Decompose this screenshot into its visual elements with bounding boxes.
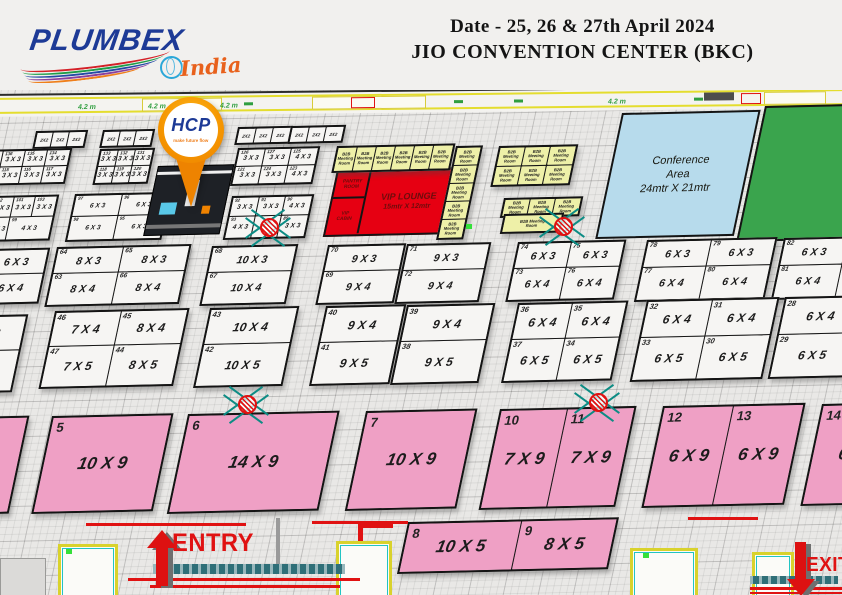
booth-cell: 2X2 xyxy=(134,131,153,145)
conference-size: 24mtr X 21mtr xyxy=(638,181,711,197)
booth-row: 376 X 5346 X 5 xyxy=(503,338,618,381)
wall-segment xyxy=(86,523,246,526)
pin-tagline: make future flow xyxy=(174,138,209,143)
conference-label-2: Area xyxy=(665,167,691,182)
booth-size: 2X2 xyxy=(276,132,285,137)
booth-size: B2B Meeting Room xyxy=(447,204,465,218)
booth-block: 510 X 9 xyxy=(31,413,173,514)
booth-block: B2B Meeting RoomB2B Meeting RoomB2B Meet… xyxy=(490,144,578,187)
booth-size: B2B Meeting Room xyxy=(375,151,393,165)
booth-number: 125 xyxy=(293,149,301,154)
aisle-width-label: 4.2 m xyxy=(608,98,626,105)
booth-number: 63 xyxy=(54,274,63,281)
marker-circle xyxy=(238,395,257,414)
booth-number: 92 xyxy=(235,198,241,203)
door-inner xyxy=(62,548,114,595)
booth-size: 2X2 xyxy=(40,137,49,142)
hcp-location-pin[interactable]: HCP make future flow xyxy=(155,97,227,217)
booth-number: 82 xyxy=(786,240,795,247)
booth-72: 729 X 4 xyxy=(397,269,484,302)
booth-block: 810 X 598 X 5 xyxy=(397,517,619,574)
booth-size: 3 X 3 xyxy=(100,155,117,162)
booth-number: 46 xyxy=(57,313,67,322)
booth-number: 123 xyxy=(289,166,297,171)
booth-row: 336 X 5306 X 5 xyxy=(632,335,770,380)
booth-number: 40 xyxy=(328,308,338,317)
vip-cabin-label: VIP CABIN xyxy=(334,210,355,221)
booth-40: 409 X 4 xyxy=(320,306,404,343)
booth-size: 6 X 5 xyxy=(717,349,748,364)
booth-number: 38 xyxy=(401,342,411,351)
booth-number: 99 xyxy=(11,217,17,222)
booth-size: 6 X 9 xyxy=(836,443,842,464)
booth-124: 1243 X 3 xyxy=(258,166,288,184)
plumbex-logo: PLUMBEX India xyxy=(18,18,268,84)
corridor-red-mark xyxy=(741,93,761,104)
booth-block: 1373 X 31363 X 31353 X 31343 X 31143 X 3… xyxy=(0,148,72,186)
booth-size: 14 X 9 xyxy=(226,452,280,473)
door-frame xyxy=(630,548,698,595)
booth-number: 96 xyxy=(124,195,130,200)
booth-number: 42 xyxy=(204,345,214,354)
booth-cell: B2B Meeting Room xyxy=(442,201,469,220)
booth-size: B2B Meeting Room xyxy=(458,150,476,164)
booth-row: 709 X 3 xyxy=(324,245,404,272)
booth-number: 67 xyxy=(209,273,218,280)
booth-size: 2X2 xyxy=(139,135,148,140)
booth-size: 9 X 3 xyxy=(351,252,378,265)
booth-number: 90 xyxy=(287,197,293,202)
booth-38: 389 X 5 xyxy=(392,340,485,383)
pin-badge: HCP make future flow xyxy=(164,103,218,157)
marker-circle xyxy=(589,393,608,412)
booth-34: 346 X 5 xyxy=(557,338,619,380)
booth-block: 1023 X 31013 X 31033 X 31043 X 3994 X 3 xyxy=(0,194,59,242)
booth-block: B2B Meeting RoomB2B Meeting RoomB2B Meet… xyxy=(331,143,455,173)
booth-66: 668 X 4 xyxy=(112,271,184,303)
booth-size: 6 X 9 xyxy=(736,444,780,465)
booth-62: 626 X 4 xyxy=(0,274,43,303)
booth-45: 458 X 4 xyxy=(115,310,188,345)
door-inner xyxy=(340,545,388,595)
booth-number: 98 xyxy=(73,217,79,222)
booth-block: 126 X 9136 X 9 xyxy=(641,403,805,508)
booth-number: 69 xyxy=(325,272,334,279)
booth-size: 10 X 3 xyxy=(236,253,269,266)
booth-size: 3 X 3 xyxy=(242,154,259,161)
booth-number: 68 xyxy=(214,248,223,255)
booth-size: 4 X 3 xyxy=(289,202,306,209)
booth-number: 76 xyxy=(567,268,576,275)
booth-block: 719 X 3729 X 4 xyxy=(394,242,491,304)
booth-row: 1043 X 3994 X 3 xyxy=(0,217,53,240)
booth-126: 1263 X 3 xyxy=(236,149,266,167)
booth-row: 810 X 598 X 5 xyxy=(399,519,616,572)
booth-29: 296 X 5 xyxy=(770,333,842,377)
booth-number: 65 xyxy=(124,247,133,254)
booth-number: 74 xyxy=(520,244,529,251)
booth-row: 4310 X 4 xyxy=(204,308,297,345)
floor-marker-dot xyxy=(466,224,472,229)
booth-row: 719 X 3 xyxy=(403,244,489,271)
booth-size: 2X2 xyxy=(107,136,116,141)
booth-number: 124 xyxy=(263,166,271,171)
booth-row: 729 X 4 xyxy=(397,269,484,302)
booth-size: 6 X 4 xyxy=(805,309,836,324)
booth-37: 376 X 5 xyxy=(503,339,565,381)
booth-number: 6 xyxy=(191,418,201,433)
booth-row: 126 X 9136 X 9 xyxy=(644,405,803,506)
booth-block: 4310 X 44210 X 5 xyxy=(193,306,299,388)
booth-99: 994 X 3 xyxy=(6,217,53,240)
booth-size: 3 X 3 xyxy=(265,171,282,178)
booth-size: 6 X 5 xyxy=(572,351,603,366)
marker-circle xyxy=(554,217,573,236)
booth-size: 3 X 3 xyxy=(131,170,148,177)
vip-lounge-label: VIP LOUNGE xyxy=(378,191,440,202)
booth-121: 1213 X 3 xyxy=(232,166,262,184)
booth-row: 2X22X22X2 xyxy=(290,127,344,142)
booth-78: 786 X 3 xyxy=(643,241,712,268)
booth-size: 3 X 3 xyxy=(23,171,40,178)
booth-size: 6 X 4 xyxy=(0,282,24,295)
booth-size: 3 X 3 xyxy=(1,172,18,179)
booth-size: B2B Meeting Room xyxy=(502,150,520,164)
booth-block: 2X22X22X2 xyxy=(32,130,88,149)
booth-block: 710 X 9 xyxy=(345,408,478,511)
booth-44: 448 X 5 xyxy=(106,344,180,385)
booth-123: 1234 X 3 xyxy=(285,165,315,183)
booth-size: B2B Meeting Room xyxy=(527,150,545,164)
booth-number: 93 xyxy=(231,217,237,222)
booth-row: B2B Meeting Room xyxy=(446,183,473,202)
booth-7: 710 X 9 xyxy=(347,411,475,509)
booth-number: 80 xyxy=(707,266,716,273)
booth-block: 2X22X22X2 xyxy=(234,126,293,145)
booth-number: 28 xyxy=(787,299,797,308)
pantry-label: PANTRY ROOM xyxy=(341,178,363,189)
booth-block: 1333 X 31323 X 31313 X 31183 X 31193 X 3… xyxy=(92,148,155,185)
exit-sign: EXIT xyxy=(806,554,842,577)
cross-marker xyxy=(246,205,290,249)
booth-number: 135 xyxy=(27,151,35,156)
booth-size: 3 X 3 xyxy=(5,156,22,163)
booth-row: 699 X 4 xyxy=(318,270,399,303)
booth-131: 1313 X 3 xyxy=(132,150,152,166)
conference-label-1: Conference xyxy=(651,152,711,168)
booth-77: 776 X 4 xyxy=(636,267,706,300)
booth-42: 4210 X 5 xyxy=(195,343,289,386)
booth-row: 816 X 4846 X 4 xyxy=(773,263,842,298)
booth-76: 766 X 4 xyxy=(560,267,619,299)
booth-number: 33 xyxy=(641,338,651,347)
booth-number: 81 xyxy=(781,266,790,273)
booth-size: 9 X 4 xyxy=(431,316,462,331)
booth-row: 4210 X 5 xyxy=(195,343,289,386)
booth-number: 133 xyxy=(103,151,111,156)
booth-size: 9 X 4 xyxy=(427,279,454,292)
wall-block xyxy=(0,558,46,595)
booth-block: 2X22X22X2 xyxy=(99,129,155,148)
booth-row: 1333 X 31323 X 31313 X 3 xyxy=(98,150,153,167)
booth-number: 101 xyxy=(16,197,24,202)
booth-8: 810 X 5 xyxy=(399,521,522,572)
booth-number: 134 xyxy=(49,150,57,155)
booth-row: B2B Meeting RoomB2B Meeting RoomB2B Meet… xyxy=(497,146,576,167)
booth-73: 736 X 4 xyxy=(508,268,567,300)
floor-marker-dot xyxy=(643,553,649,558)
booth-size: 3 X 3 xyxy=(27,155,44,162)
booth-size: 10 X 9 xyxy=(384,449,438,470)
booth-row: 2X22X22X2 xyxy=(35,132,86,147)
booth-block: 1263 X 31273 X 31254 X 31213 X 31243 X 3… xyxy=(230,146,320,186)
booth-size: B2B Meeting Room xyxy=(443,222,461,236)
booth-47: 477 X 5 xyxy=(41,345,115,386)
booth-size: 7 X 4 xyxy=(0,327,2,342)
booth-size: 6 X 3 xyxy=(800,246,827,259)
corridor-red-mark xyxy=(351,97,375,108)
booth-43: 4310 X 4 xyxy=(204,308,297,345)
booth-block: 366 X 4356 X 4376 X 5346 X 5 xyxy=(501,301,629,383)
booth-number: 36 xyxy=(520,305,530,314)
wall-segment xyxy=(688,517,758,520)
booth-61: 616 X 3 xyxy=(0,250,48,275)
booth-6: 614 X 9 xyxy=(169,413,337,512)
booth-row: 1143 X 31153 X 31163 X 31173 X 3 xyxy=(0,166,67,184)
booth-size: 6 X 4 xyxy=(658,277,685,290)
booth-36: 366 X 4 xyxy=(512,304,573,340)
booth-number: 132 xyxy=(120,150,128,155)
booth-size: 10 X 5 xyxy=(434,536,488,557)
booth-base xyxy=(146,223,221,229)
booth-block: 826 X 3836 X 3816 X 4846 X 4 xyxy=(771,235,842,300)
booth-block: 709 X 3699 X 4 xyxy=(315,243,406,305)
booth-size: 8 X 5 xyxy=(128,357,159,372)
booth-size: 6 X 3 xyxy=(664,248,691,261)
booth-number: 77 xyxy=(644,268,653,275)
booth-number: 47 xyxy=(49,347,59,356)
booth-size: 8 X 4 xyxy=(135,320,166,335)
booth-number: 32 xyxy=(649,302,659,311)
booth-size: 6 X 3 xyxy=(529,250,556,263)
booth-number: 120 xyxy=(133,166,141,171)
booth-number: 119 xyxy=(116,166,124,171)
booth-size: 6 X 4 xyxy=(524,278,551,291)
booth-row: 6810 X 3 xyxy=(208,246,296,273)
booth-row: 614 X 9 xyxy=(169,413,337,512)
booth-127: 1273 X 3 xyxy=(262,149,292,167)
booth-number: 91 xyxy=(261,197,267,202)
booth-row: 409 X 4 xyxy=(320,306,404,343)
booth-size: B2B Meeting Room xyxy=(454,168,472,182)
pin-brand-label: HCP xyxy=(171,115,211,136)
booth-number: 73 xyxy=(515,269,524,276)
booth-32: 326 X 4 xyxy=(641,301,713,338)
booth-79: 796 X 3 xyxy=(706,239,775,266)
booth-block: 614 X 9 xyxy=(167,411,340,514)
vip-lounge-size: 15mtr X 12mtr xyxy=(382,203,430,211)
booth-size: 6 X 3 xyxy=(89,202,106,209)
booth-size: 2X2 xyxy=(259,133,268,138)
booth-row: 786 X 3796 X 3 xyxy=(643,239,775,268)
booth-block: 2X22X22X2 xyxy=(287,125,346,144)
booth-number: 118 xyxy=(99,167,107,172)
booth-row: 326 X 4316 X 4 xyxy=(641,299,777,338)
booth-number: 70 xyxy=(330,247,339,254)
booth-row: 1263 X 31273 X 31254 X 3 xyxy=(236,148,318,167)
booth-68: 6810 X 3 xyxy=(208,246,296,273)
booth-size: B2B Meeting Room xyxy=(548,168,566,182)
booth-number: 126 xyxy=(241,150,249,155)
booth-80: 806 X 4 xyxy=(700,265,770,298)
booth-number: 10 xyxy=(503,413,521,428)
booth-103: 1033 X 3 xyxy=(32,197,57,217)
booth-size: 2X2 xyxy=(329,131,338,136)
booth-block: 786 X 3796 X 3776 X 4806 X 4 xyxy=(634,237,778,302)
column xyxy=(276,518,280,570)
booth-125: 1254 X 3 xyxy=(288,148,318,166)
booth-size: 3 X 3 xyxy=(15,204,32,211)
booth-35: 356 X 4 xyxy=(565,303,626,339)
booth-size: 6 X 4 xyxy=(726,310,757,325)
booth-row: B2B Meeting Room xyxy=(438,219,465,238)
booth-65: 658 X 3 xyxy=(119,246,190,272)
booth-number: 9 xyxy=(524,523,534,538)
booth-number: 64 xyxy=(59,249,68,256)
booth-size: 9 X 3 xyxy=(433,251,460,264)
booth-number: 5 xyxy=(55,420,65,435)
booth-size: 6 X 3 xyxy=(727,247,754,260)
booth-33: 336 X 5 xyxy=(632,337,705,380)
booth-row: 2X22X22X2 xyxy=(102,131,153,146)
booth-size: 6 X 4 xyxy=(576,276,603,289)
booth-row: 477 X 5448 X 5 xyxy=(41,344,180,387)
booth-size: 10 X 9 xyxy=(76,453,130,474)
booth-size: 6 X 3 xyxy=(84,224,101,231)
booth-row: 366 X 4356 X 4 xyxy=(512,303,626,340)
booth-size: 9 X 5 xyxy=(423,354,454,369)
booth-size: B2B Meeting Room xyxy=(337,152,355,166)
event-date: Date - 25, 26 & 27th April 2024 xyxy=(330,16,835,38)
booth-row: 399 X 4 xyxy=(401,305,493,342)
booth-number: 37 xyxy=(512,340,522,349)
booth-120: 1203 X 3 xyxy=(129,166,149,182)
booth-size: 6 X 5 xyxy=(653,351,684,366)
booth-82: 826 X 3 xyxy=(780,239,842,266)
booth-cell: B2B Meeting Room xyxy=(438,219,465,238)
booth-number: 13 xyxy=(735,408,753,423)
booth-size: 7 X 9 xyxy=(502,448,546,469)
booth-size: 3 X 3 xyxy=(49,155,66,162)
booth-number: 34 xyxy=(565,339,575,348)
marker-circle xyxy=(260,218,279,237)
floorplan-screenshot: 4.2 m4.2 m4.2 m4.2 m PANTRY ROOM VIP CAB… xyxy=(0,0,842,595)
booth-134: 1343 X 3 xyxy=(45,150,71,166)
booth-size: 4 X 3 xyxy=(291,170,308,177)
booth-row: 1183 X 31193 X 31203 X 3 xyxy=(95,166,150,183)
booth-row: 616 X 3 xyxy=(0,250,48,275)
booth-size: B2B Meeting Room xyxy=(523,168,541,182)
booth-98: 986 X 3 xyxy=(67,216,118,240)
booth-cell: 2X2 xyxy=(324,127,344,141)
booth-row: B2B Meeting RoomB2B Meeting RoomB2B Meet… xyxy=(493,165,572,185)
booth-69: 699 X 4 xyxy=(318,270,399,303)
booth-row: 776 X 4806 X 4 xyxy=(636,265,769,300)
booth-size: 6 X 5 xyxy=(519,353,550,368)
booth-number: 72 xyxy=(404,271,413,278)
booth-71: 719 X 3 xyxy=(403,244,489,271)
booth-97: 976 X 3 xyxy=(72,195,123,217)
booth-number: 117 xyxy=(45,166,53,171)
booth-size: 8 X 3 xyxy=(140,253,167,266)
booth-size: 6 X 4 xyxy=(580,313,611,328)
booth-row: 286 X 4 xyxy=(779,297,842,335)
booth-block: 326 X 4316 X 4336 X 5306 X 5 xyxy=(630,297,780,382)
booth-row: 638 X 4668 X 4 xyxy=(47,271,184,305)
booth-row: 1213 X 31243 X 31234 X 3 xyxy=(232,165,314,184)
wall-segment xyxy=(312,521,408,524)
booth-number: 43 xyxy=(212,310,222,319)
booth-number: 41 xyxy=(320,343,330,352)
corridor-bay xyxy=(764,91,826,105)
booth-size: B2B Meeting Room xyxy=(507,201,525,215)
booth-block: 6810 X 36710 X 4 xyxy=(199,244,298,306)
booth-size: 6 X 4 xyxy=(794,275,821,288)
logo-india: India xyxy=(179,52,242,81)
booth-number: 7 xyxy=(369,415,379,430)
booth-81: 816 X 4 xyxy=(773,265,842,298)
corridor-green-mark xyxy=(244,102,253,105)
booth-size: 3 X 3 xyxy=(0,204,10,211)
booth-size: 8 X 4 xyxy=(69,282,96,295)
booth-size: 9 X 5 xyxy=(338,355,369,370)
cross-marker xyxy=(575,380,619,424)
booth-size: B2B Meeting Room xyxy=(432,150,450,164)
booth-size: B2B Meeting Room xyxy=(552,149,570,163)
booth-size: 2X2 xyxy=(56,137,65,142)
booth-number: 44 xyxy=(115,345,125,354)
booth-number: 8 xyxy=(411,526,421,541)
booth-row: B2B Meeting Room xyxy=(454,147,481,166)
booth-number: 127 xyxy=(267,149,275,154)
booth-block: 746 X 3756 X 3736 X 4766 X 4 xyxy=(505,240,626,302)
corridor-dark-mark xyxy=(704,92,734,100)
booth-size: 9 X 4 xyxy=(345,280,372,293)
booth-number: 97 xyxy=(78,196,84,201)
booth-size: 8 X 3 xyxy=(75,254,102,267)
booth-row: B2B Meeting Room xyxy=(450,165,477,184)
booth-size: 4 X 3 xyxy=(21,224,38,231)
booth-cell: B2B Meeting Room xyxy=(454,147,481,166)
floor-marker-dot xyxy=(66,549,72,554)
booth-63: 638 X 4 xyxy=(47,272,119,304)
booth-number: 131 xyxy=(137,150,145,155)
booth-row: 648 X 3658 X 3 xyxy=(53,246,189,274)
booth-cell: B2B Meeting Room xyxy=(446,183,473,202)
cross-marker xyxy=(540,204,584,248)
booth-9: 98 X 5 xyxy=(512,519,617,569)
booth-size: 3 X 3 xyxy=(0,225,6,232)
booth-size: 3 X 3 xyxy=(97,171,114,178)
booth-size: 3 X 3 xyxy=(239,171,256,178)
booth-size: B2B Meeting Room xyxy=(356,152,374,166)
booth-number: 66 xyxy=(119,272,128,279)
booth-row: 6710 X 4 xyxy=(202,271,291,304)
booth-block: 399 X 4389 X 5 xyxy=(390,303,495,385)
booth-39: 399 X 4 xyxy=(401,305,493,342)
booth-size: B2B Meeting Room xyxy=(498,169,516,183)
door-inner xyxy=(634,552,694,595)
